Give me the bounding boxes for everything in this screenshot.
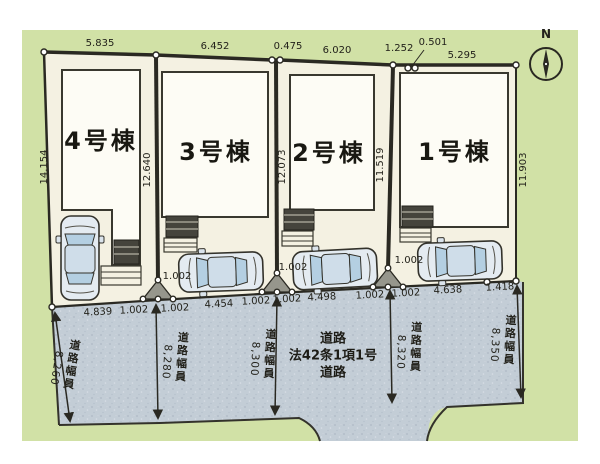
road-width-label: 8,280 道路幅員 <box>159 330 191 384</box>
north-label: N <box>541 28 551 40</box>
porch-2 <box>284 209 314 230</box>
frontage-dimension: 4.638 <box>433 285 462 296</box>
side-dimension: 12.640 <box>143 153 153 188</box>
road-designation-line: 法42条1項1号 <box>289 347 377 364</box>
top-dimension: 5.835 <box>86 39 115 49</box>
setback-dimension: 1.002 <box>279 263 308 273</box>
top-dimension: 6.452 <box>201 42 230 52</box>
frontage-dimension: 1.002 <box>241 296 270 307</box>
road-designation-line: 道路 <box>289 330 377 347</box>
building-label: 4号棟 <box>64 129 138 153</box>
building-label: 2号棟 <box>292 141 366 165</box>
road-designation: 道路 法42条1項1号 道路 <box>289 330 377 381</box>
porch-3 <box>166 216 198 237</box>
setback-dimension: 1.002 <box>163 272 192 282</box>
site-plan-image: 5.835 6.452 0.475 6.020 1.252 0.501 5.29… <box>0 0 600 464</box>
road-width-label: 8,300 道路幅員 <box>248 327 279 380</box>
side-dimension: 14.154 <box>40 150 50 185</box>
frontage-dimension: 1.002 <box>391 288 420 299</box>
setback-dimension: 1.002 <box>395 256 424 266</box>
frontage-dimension: 1.002 <box>119 305 148 316</box>
porch-1 <box>402 206 433 227</box>
car-lot1 <box>417 236 503 287</box>
frontage-dimension: 1.418 <box>485 282 514 293</box>
road-width-label: 8,320 道路幅員 <box>394 321 424 374</box>
top-dimension: 5.295 <box>448 51 477 61</box>
top-dimension: 0.475 <box>274 42 303 52</box>
side-dimension: 11.519 <box>376 148 386 183</box>
porch-4 <box>114 240 139 264</box>
road-width-kanji: 道路幅員 <box>500 314 519 367</box>
top-dimension: 6.020 <box>323 46 352 56</box>
building-label: 3号棟 <box>179 140 253 164</box>
road-width-label: 8,350 道路幅員 <box>488 313 519 366</box>
steps-1 <box>400 228 431 242</box>
steps-2 <box>282 231 313 246</box>
top-dimension: 1.252 <box>385 44 414 54</box>
steps-3 <box>164 238 197 252</box>
road-width-kanji: 道路幅員 <box>260 328 279 381</box>
frontage-dimension: 4.454 <box>204 299 233 310</box>
building-label: 1号棟 <box>418 140 492 164</box>
frontage-dimension: 1.002 <box>160 303 189 314</box>
car-lot4 <box>56 216 104 300</box>
frontage-dimension: 1.002 <box>355 290 384 301</box>
road-designation-line: 道路 <box>289 365 377 382</box>
frontage-dimension: 4.498 <box>307 292 336 303</box>
side-dimension: 12.073 <box>278 150 288 185</box>
road-width-kanji: 道路幅員 <box>406 321 424 374</box>
top-dimension: 0.501 <box>419 38 448 48</box>
side-dimension: 11.903 <box>519 153 529 188</box>
site-plan-drawing <box>0 0 600 464</box>
frontage-dimension: 4.839 <box>83 307 112 318</box>
frontage-dimension: 1.002 <box>272 294 301 305</box>
steps-4 <box>101 266 141 285</box>
